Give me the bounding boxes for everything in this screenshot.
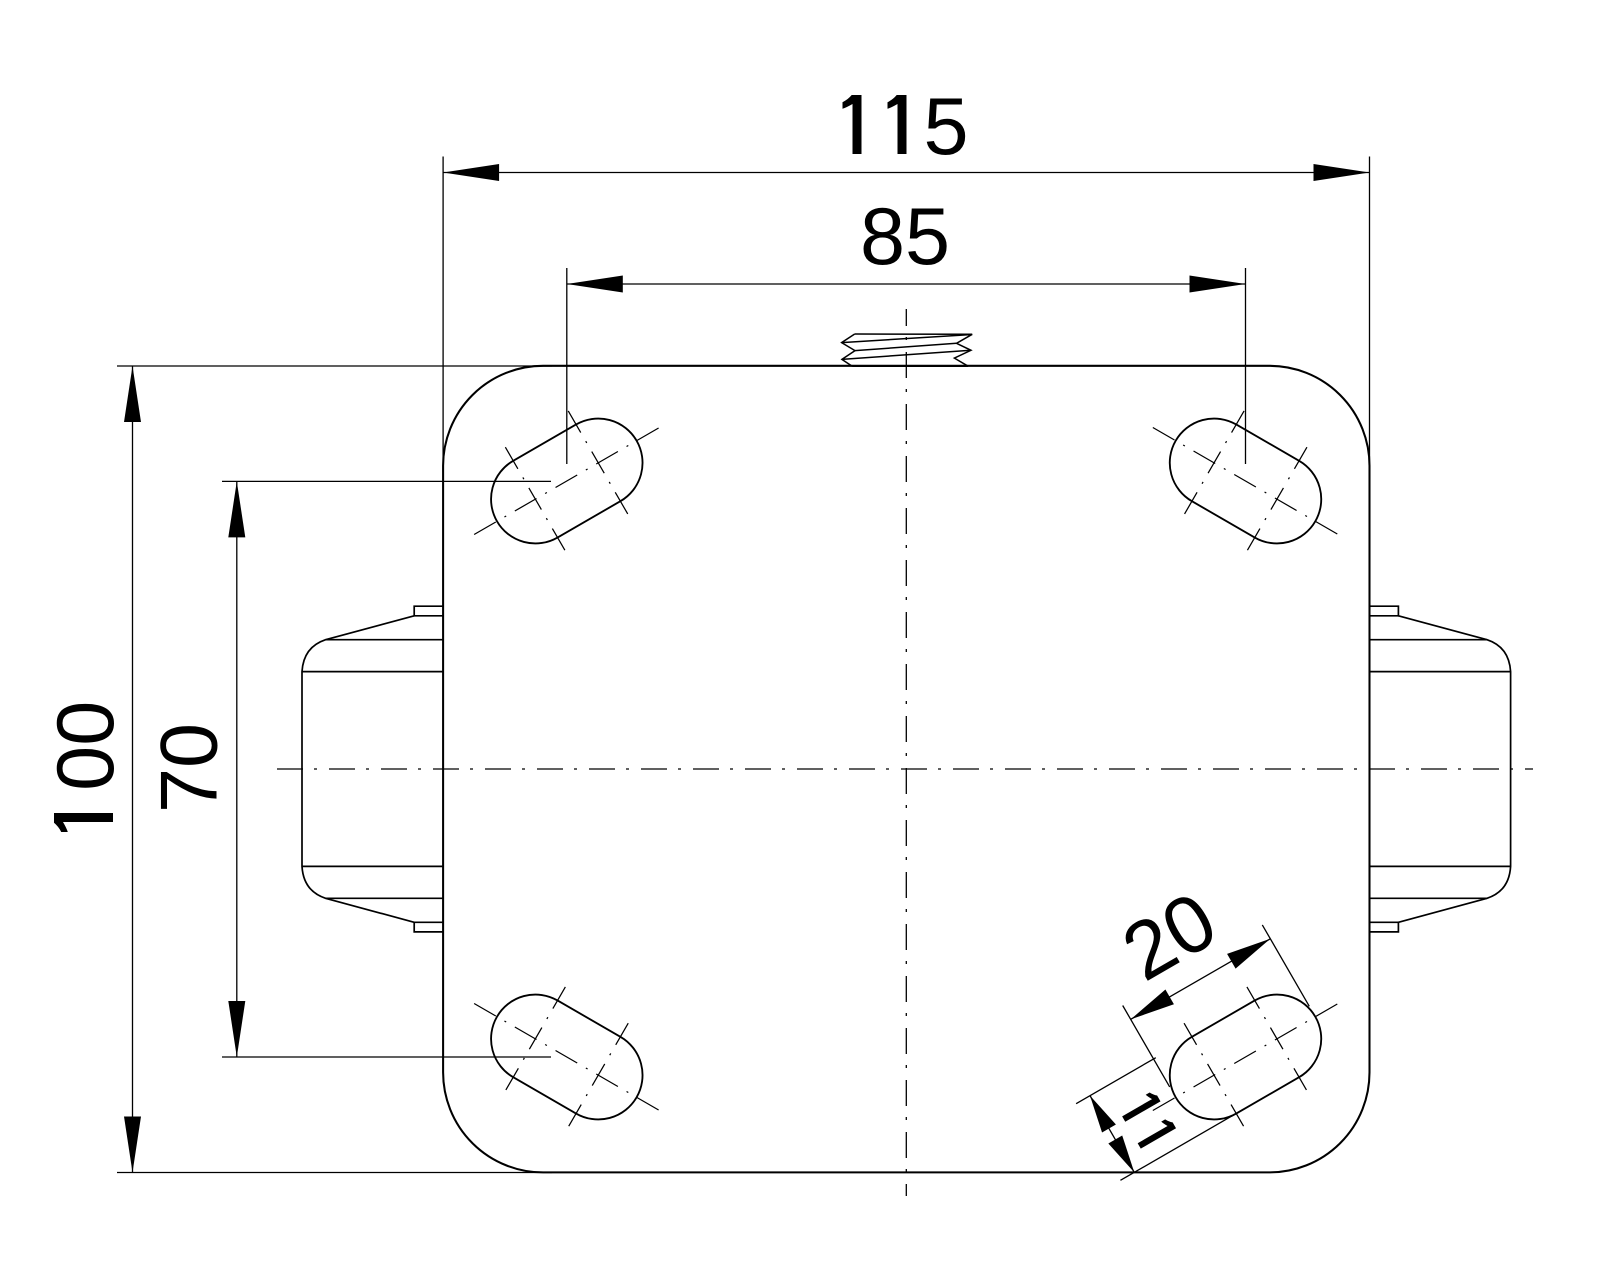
svg-text:85: 85 (860, 192, 950, 282)
svg-text:5: 5 (923, 82, 968, 172)
svg-text:00: 00 (41, 701, 131, 791)
svg-text:70: 70 (145, 723, 235, 813)
